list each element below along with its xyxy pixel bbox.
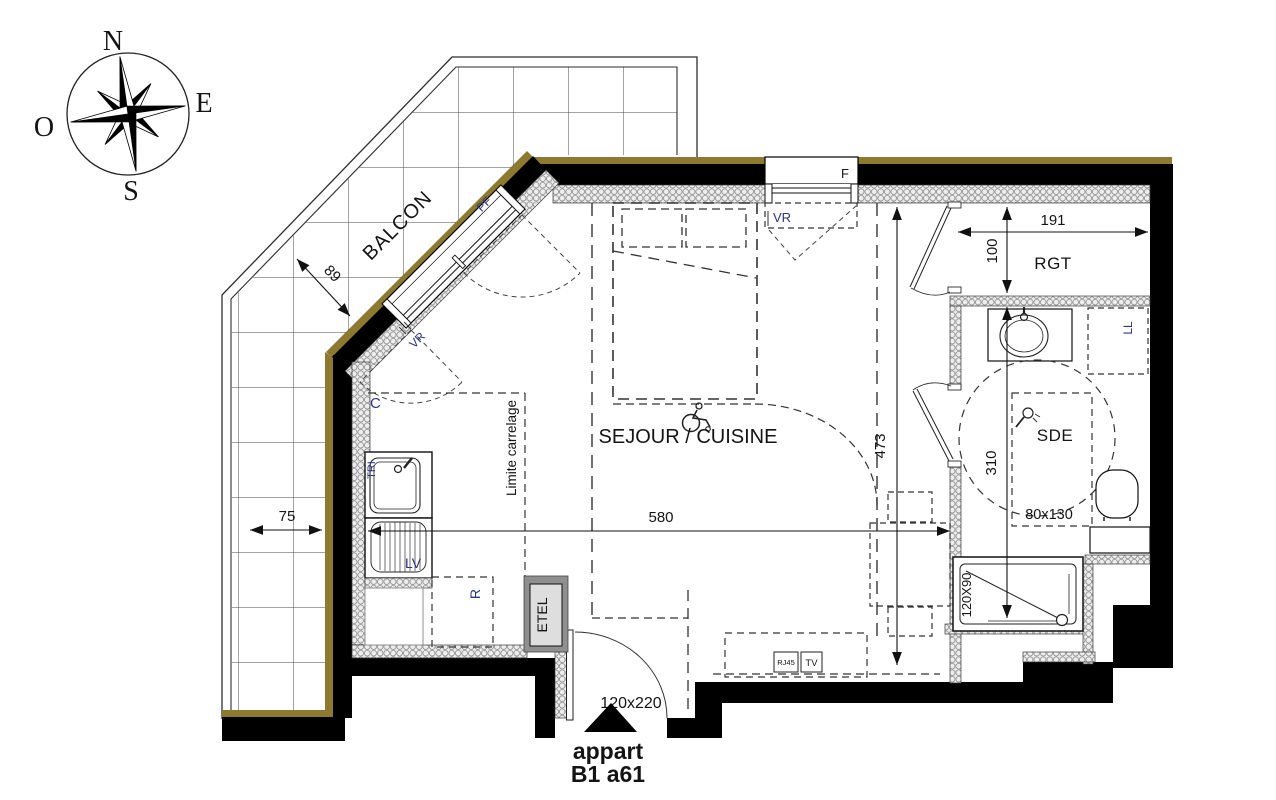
etel-box: ETEL xyxy=(524,576,568,652)
wall-right xyxy=(1150,164,1173,627)
shutter-top-label: VR xyxy=(773,210,791,225)
apartment-label-line2: B1 a61 xyxy=(571,761,645,787)
compass-west-label: O xyxy=(34,112,54,143)
living-room-label: SEJOUR / CUISINE xyxy=(599,426,778,448)
window-f: F xyxy=(765,157,858,203)
dim-rgt-depth: 100 xyxy=(984,238,1001,263)
storage-room-label: RGT xyxy=(1034,254,1071,273)
dim-living-length: 473 xyxy=(872,433,889,458)
dishwasher: LV xyxy=(365,518,432,578)
dim-balcony-strip: 75 xyxy=(279,508,296,525)
rj45-label: RJ45 xyxy=(777,658,795,667)
dim-sde-depth: 310 xyxy=(983,450,1000,475)
shower-tray: 120X90 xyxy=(953,557,1083,631)
tile-limit-label: Limite carrelage xyxy=(504,400,519,496)
sockets: RJ45 TV xyxy=(774,652,822,672)
kitchen-sink-unit: TRI xyxy=(365,452,432,518)
floor-plan-drawing: N E O S BALCON xyxy=(0,0,1276,800)
compass-south-label: S xyxy=(123,176,139,207)
dim-living-width: 580 xyxy=(648,509,673,526)
shower-drain-icon xyxy=(1057,615,1068,626)
shower-tray-label: 120X90 xyxy=(959,573,974,618)
etel-label: ETEL xyxy=(534,597,550,632)
wall-balcony-bottom xyxy=(222,717,345,741)
wall-step-1 xyxy=(1023,662,1113,703)
wall-entry-left xyxy=(535,658,555,738)
compass-north-label: N xyxy=(103,26,123,57)
washbasin xyxy=(988,307,1072,361)
bathroom-room-label: SDE xyxy=(1037,426,1073,445)
fridge-label: R xyxy=(467,589,483,599)
window-f-label: F xyxy=(841,166,849,181)
wall-step-2 xyxy=(1113,605,1173,668)
partition-mid xyxy=(950,306,961,386)
kitchen-wall-stub xyxy=(365,578,432,588)
transfer-zone-label: 80x130 xyxy=(1025,507,1073,523)
tv-label: TV xyxy=(805,658,818,669)
compass-east-label: E xyxy=(195,88,212,119)
floor-plan-page: N E O S BALCON xyxy=(0,0,1276,800)
dim-rgt-width: 191 xyxy=(1040,212,1065,229)
wall-bottom-living xyxy=(695,682,1023,703)
dishwasher-label: LV xyxy=(405,555,422,571)
sorting-label: TRI xyxy=(366,461,378,479)
kitchen-niche xyxy=(365,588,423,645)
washer-label: LL xyxy=(1121,321,1135,335)
partition-under-rgt xyxy=(950,296,1150,306)
closet-label: C xyxy=(370,395,381,412)
